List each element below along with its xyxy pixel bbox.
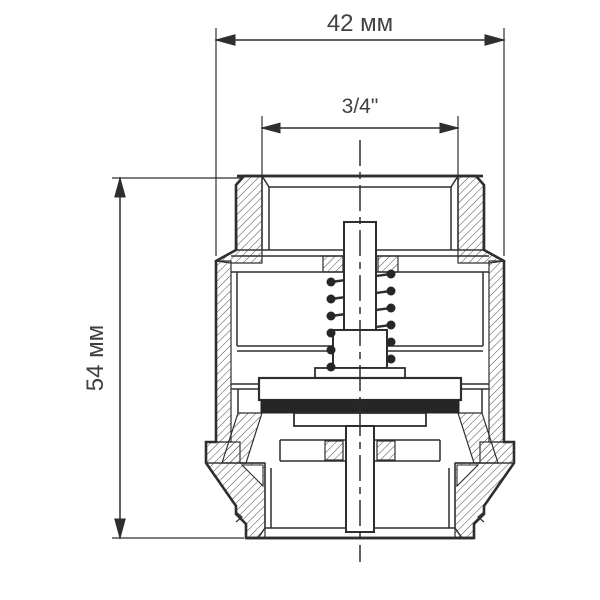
arrowhead-top: [115, 178, 125, 197]
arrowhead-left: [262, 123, 280, 133]
lower-bridge-web-left: [325, 441, 343, 460]
arrowhead-bottom: [115, 519, 125, 538]
body-wall-left: [216, 261, 231, 442]
dimension-height-label: 54 мм: [82, 325, 109, 391]
dimension-thread-label: 3/4": [342, 95, 379, 118]
upper-bridge-web-right: [378, 256, 398, 272]
arrowhead-right: [485, 35, 504, 45]
cap-wall-left: [236, 176, 262, 250]
arrowhead-right: [440, 123, 458, 133]
technical-drawing-canvas: 42 мм 3/4" 54 мм: [0, 0, 600, 600]
check-valve-cross-section-drawing: 42 мм 3/4" 54 мм: [0, 0, 600, 600]
upper-bridge-web-left: [323, 256, 343, 272]
lower-bridge-web-right: [377, 441, 395, 460]
dimension-width-label: 42 мм: [327, 10, 393, 37]
arrowhead-left: [216, 35, 235, 45]
cap-wall-right: [458, 176, 484, 250]
body-wall-right: [489, 261, 504, 442]
